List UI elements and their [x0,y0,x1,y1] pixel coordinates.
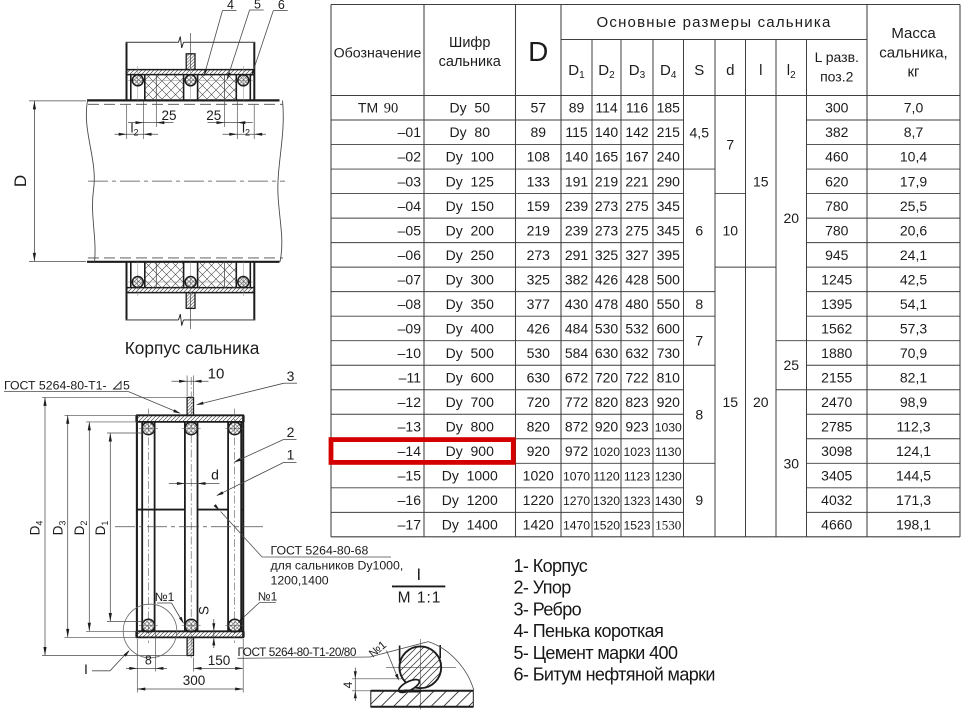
svg-text:Dy 300: Dy 300 [446,271,494,287]
svg-text:4: 4 [341,681,355,688]
svg-text:6- Битум нефтяной марки: 6- Битум нефтяной марки [514,665,715,685]
svg-text:Dy 100: Dy 100 [446,149,494,165]
svg-text:923: 923 [625,418,649,434]
svg-text:273: 273 [527,247,551,263]
svg-text:167: 167 [625,149,649,165]
svg-text:221: 221 [625,173,649,189]
svg-text:820: 820 [595,394,619,410]
svg-text:720: 720 [595,369,619,385]
svg-text:1023: 1023 [623,445,650,459]
svg-text:–07: –07 [398,271,422,287]
svg-text:780: 780 [825,222,849,238]
svg-text:Dy 1000: Dy 1000 [442,468,498,484]
svg-text:945: 945 [825,247,849,263]
svg-text:–15: –15 [398,468,422,484]
svg-text:1880: 1880 [821,345,852,361]
svg-text:142: 142 [625,124,649,140]
svg-text:1020: 1020 [593,445,620,459]
svg-text:1220: 1220 [523,492,554,508]
svg-text:972: 972 [565,443,589,459]
svg-text:8: 8 [695,406,703,422]
svg-text:1323: 1323 [623,494,650,508]
svg-text:219: 219 [595,173,619,189]
svg-text:115: 115 [565,124,588,140]
svg-text:–10: –10 [398,345,422,361]
svg-text:3: 3 [287,368,295,384]
svg-text:для сальников Dy1000,: для сальников Dy1000, [271,559,404,573]
svg-text:382: 382 [825,124,849,140]
svg-text:1230: 1230 [655,470,682,484]
svg-text:1562: 1562 [821,320,852,336]
svg-text:124,1: 124,1 [896,443,931,459]
svg-text:I: I [417,566,422,584]
svg-text:428: 428 [625,271,649,287]
svg-text:133: 133 [527,173,551,189]
svg-text:5: 5 [254,0,261,12]
svg-text:20: 20 [783,210,799,226]
svg-text:140: 140 [565,149,589,165]
svg-text:920: 920 [657,394,681,410]
svg-text:325: 325 [595,247,619,263]
svg-text:584: 584 [565,345,589,361]
svg-text:1020: 1020 [523,468,554,484]
svg-text:530: 530 [527,345,551,361]
svg-text:600: 600 [657,320,681,336]
svg-text:3- Ребро: 3- Ребро [514,599,582,619]
svg-text:3098: 3098 [821,443,852,459]
svg-text:–17: –17 [398,517,422,533]
svg-text:Основные размеры сальника: Основные размеры сальника [597,14,832,31]
svg-text:Dy 250: Dy 250 [446,247,494,263]
svg-text:198,1: 198,1 [896,517,931,533]
svg-text:89: 89 [530,124,546,140]
svg-text:10: 10 [208,366,225,383]
svg-text:–04: –04 [398,198,422,214]
svg-text:Dy 700: Dy 700 [446,394,494,410]
svg-text:4660: 4660 [821,517,852,533]
svg-text:239: 239 [565,198,589,214]
svg-text:6: 6 [278,0,285,12]
svg-text:8: 8 [145,654,152,668]
svg-text:8,7: 8,7 [904,124,924,140]
svg-text:395: 395 [657,247,681,263]
svg-text:2: 2 [287,424,295,440]
svg-text:630: 630 [595,345,619,361]
svg-text:82,1: 82,1 [900,369,927,385]
svg-text:Dy 1400: Dy 1400 [442,517,498,533]
svg-text:219: 219 [527,222,551,238]
svg-text:ТМ: ТМ [358,100,378,116]
svg-text:772: 772 [565,394,589,410]
svg-text:500: 500 [657,271,681,287]
svg-text:54,1: 54,1 [900,296,927,312]
svg-text:–02: –02 [398,149,422,165]
svg-text:382: 382 [565,271,589,287]
svg-text:20,6: 20,6 [900,222,927,238]
svg-text:478: 478 [595,296,619,312]
svg-text:4: 4 [227,0,234,12]
svg-text:90: 90 [384,101,399,117]
svg-text:532: 532 [625,320,649,336]
svg-text:сальника,: сальника, [879,45,947,62]
svg-text:239: 239 [565,222,589,238]
svg-text:1130: 1130 [655,445,681,459]
svg-text:Dy 500: Dy 500 [446,345,494,361]
svg-text:15: 15 [753,173,769,189]
svg-text:30: 30 [783,455,799,471]
svg-text:1270: 1270 [563,494,590,508]
svg-text:D: D [11,175,30,187]
svg-text:57,3: 57,3 [900,320,927,336]
svg-text:377: 377 [527,296,551,312]
svg-text:Dy 200: Dy 200 [446,222,494,238]
svg-text:171,3: 171,3 [896,492,931,508]
svg-text:1: 1 [287,447,295,463]
svg-text:5: 5 [123,379,130,393]
svg-text:Dy 150: Dy 150 [446,198,494,214]
svg-text:720: 720 [527,394,551,410]
svg-text:I: I [84,661,88,677]
svg-text:Dy 600: Dy 600 [446,369,494,385]
svg-text:345: 345 [657,198,681,214]
svg-text:S: S [694,62,704,79]
svg-text:1523: 1523 [623,519,650,533]
svg-text:–11: –11 [399,369,422,385]
svg-text:D: D [528,36,548,67]
svg-text:–06: –06 [398,247,422,263]
svg-text:426: 426 [595,271,619,287]
svg-text:114: 114 [595,100,618,116]
svg-text:М 1:1: М 1:1 [398,590,442,607]
svg-text:–09: –09 [398,320,422,336]
svg-text:1- Корпус: 1- Корпус [514,556,588,576]
svg-text:№1: №1 [258,590,278,604]
svg-text:4- Пенька короткая: 4- Пенька короткая [514,621,664,641]
svg-text:L разв.: L разв. [815,49,859,65]
svg-text:25: 25 [783,357,799,373]
svg-text:1470: 1470 [563,519,590,533]
svg-text:275: 275 [625,222,649,238]
svg-text:1520: 1520 [593,519,620,533]
svg-text:Dy 800: Dy 800 [446,418,494,434]
svg-text:620: 620 [825,173,849,189]
svg-text:25: 25 [206,108,221,123]
svg-text:25,5: 25,5 [900,198,927,214]
svg-text:290: 290 [657,173,681,189]
svg-text:823: 823 [625,394,649,410]
svg-text:291: 291 [565,247,589,263]
svg-text:5- Цемент марки 400: 5- Цемент марки 400 [514,643,678,663]
svg-text:275: 275 [625,198,649,214]
svg-text:7: 7 [695,333,703,349]
svg-text:165: 165 [595,149,619,165]
svg-text:1245: 1245 [821,271,852,287]
svg-text:530: 530 [595,320,619,336]
svg-text:2- Упор: 2- Упор [514,578,572,598]
svg-text:215: 215 [657,124,681,140]
svg-text:Обозначение: Обозначение [334,46,422,62]
svg-text:484: 484 [565,320,589,336]
svg-text:1123: 1123 [624,470,650,484]
svg-text:9: 9 [695,492,703,508]
svg-text:–12: –12 [398,394,422,410]
svg-text:4,5: 4,5 [690,124,710,140]
svg-text:300: 300 [183,673,206,688]
svg-text:№1: №1 [155,590,175,604]
svg-text:632: 632 [625,345,649,361]
svg-text:1200,1400: 1200,1400 [271,573,329,587]
svg-text:7,0: 7,0 [904,100,924,116]
svg-text:1030: 1030 [655,420,682,434]
svg-text:630: 630 [527,369,551,385]
svg-text:722: 722 [625,369,649,385]
svg-text:1395: 1395 [821,296,852,312]
svg-text:24,1: 24,1 [900,247,927,263]
svg-text:–14: –14 [398,443,422,459]
svg-text:57: 57 [530,100,546,116]
svg-text:Масса: Масса [891,25,936,42]
svg-text:Dy 350: Dy 350 [446,296,494,312]
svg-text:185: 185 [657,100,681,116]
svg-text:460: 460 [825,149,849,165]
svg-text:1070: 1070 [563,470,590,484]
svg-text:810: 810 [657,369,681,385]
svg-text:25: 25 [161,108,176,123]
svg-text:112,3: 112,3 [897,418,931,434]
svg-text:1320: 1320 [593,494,620,508]
svg-text:–01: –01 [398,124,422,140]
svg-text:2470: 2470 [821,394,852,410]
svg-text:2785: 2785 [821,418,852,434]
svg-text:поз.2: поз.2 [820,69,854,85]
svg-text:17,9: 17,9 [900,173,927,189]
svg-text:1430: 1430 [655,494,682,508]
svg-text:20: 20 [753,394,769,410]
svg-text:Корпус сальника: Корпус сальника [125,338,260,358]
svg-text:820: 820 [527,418,551,434]
svg-text:920: 920 [595,418,619,434]
svg-text:1120: 1120 [593,470,619,484]
svg-text:10,4: 10,4 [900,149,927,165]
svg-text:108: 108 [527,149,551,165]
svg-text:4032: 4032 [821,492,852,508]
svg-text:Dy 80: Dy 80 [450,124,491,140]
svg-text:Dy 50: Dy 50 [450,100,491,116]
svg-text:780: 780 [825,198,849,214]
svg-text:550: 550 [657,296,681,312]
svg-text:d: d [211,467,219,483]
svg-text:327: 327 [625,247,649,263]
svg-text:–16: –16 [398,492,422,508]
svg-text:ГОСТ 5264-80-Т1-: ГОСТ 5264-80-Т1- [4,379,107,393]
svg-text:1420: 1420 [523,517,554,533]
svg-text:кг: кг [907,64,920,81]
svg-text:300: 300 [825,100,849,116]
svg-text:7: 7 [726,137,734,153]
svg-text:Dy 900: Dy 900 [446,443,494,459]
svg-text:сальника: сальника [439,54,502,70]
svg-text:191: 191 [565,173,589,189]
svg-text:Dy 1200: Dy 1200 [442,492,498,508]
svg-text:325: 325 [527,271,551,287]
svg-text:S: S [197,606,212,615]
svg-text:426: 426 [527,320,551,336]
svg-text:d: d [726,62,734,79]
svg-text:159: 159 [527,198,551,214]
svg-text:150: 150 [208,653,231,668]
svg-text:480: 480 [625,296,649,312]
svg-text:42,5: 42,5 [900,271,927,287]
svg-text:920: 920 [527,443,551,459]
svg-text:–08: –08 [398,296,422,312]
svg-text:8: 8 [695,296,703,312]
svg-text:–03: –03 [398,173,422,189]
svg-text:1530: 1530 [655,518,681,533]
svg-text:2155: 2155 [821,369,852,385]
svg-text:430: 430 [565,296,589,312]
svg-text:Шифр: Шифр [449,35,490,51]
svg-text:l: l [759,62,762,79]
svg-text:672: 672 [565,369,589,385]
svg-text:Dy 400: Dy 400 [446,320,494,336]
svg-text:116: 116 [626,100,649,116]
svg-text:70,9: 70,9 [900,345,927,361]
svg-text:273: 273 [595,222,619,238]
svg-text:Dy 125: Dy 125 [446,173,494,189]
svg-text:3405: 3405 [821,468,852,484]
svg-text:–13: –13 [398,418,422,434]
svg-text:10: 10 [722,222,738,238]
svg-text:98,9: 98,9 [900,394,927,410]
svg-text:ГОСТ 5264-80-Т1-20/80: ГОСТ 5264-80-Т1-20/80 [238,645,357,659]
svg-text:15: 15 [722,394,738,410]
svg-text:273: 273 [595,198,619,214]
svg-text:872: 872 [565,418,589,434]
svg-text:240: 240 [657,149,681,165]
svg-text:6: 6 [695,222,703,238]
svg-text:–05: –05 [398,222,422,238]
svg-text:730: 730 [657,345,681,361]
svg-text:144,5: 144,5 [896,468,931,484]
svg-text:ГОСТ 5264-80-68: ГОСТ 5264-80-68 [271,544,369,558]
svg-text:89: 89 [569,100,585,116]
svg-text:140: 140 [595,124,619,140]
svg-text:345: 345 [657,222,681,238]
